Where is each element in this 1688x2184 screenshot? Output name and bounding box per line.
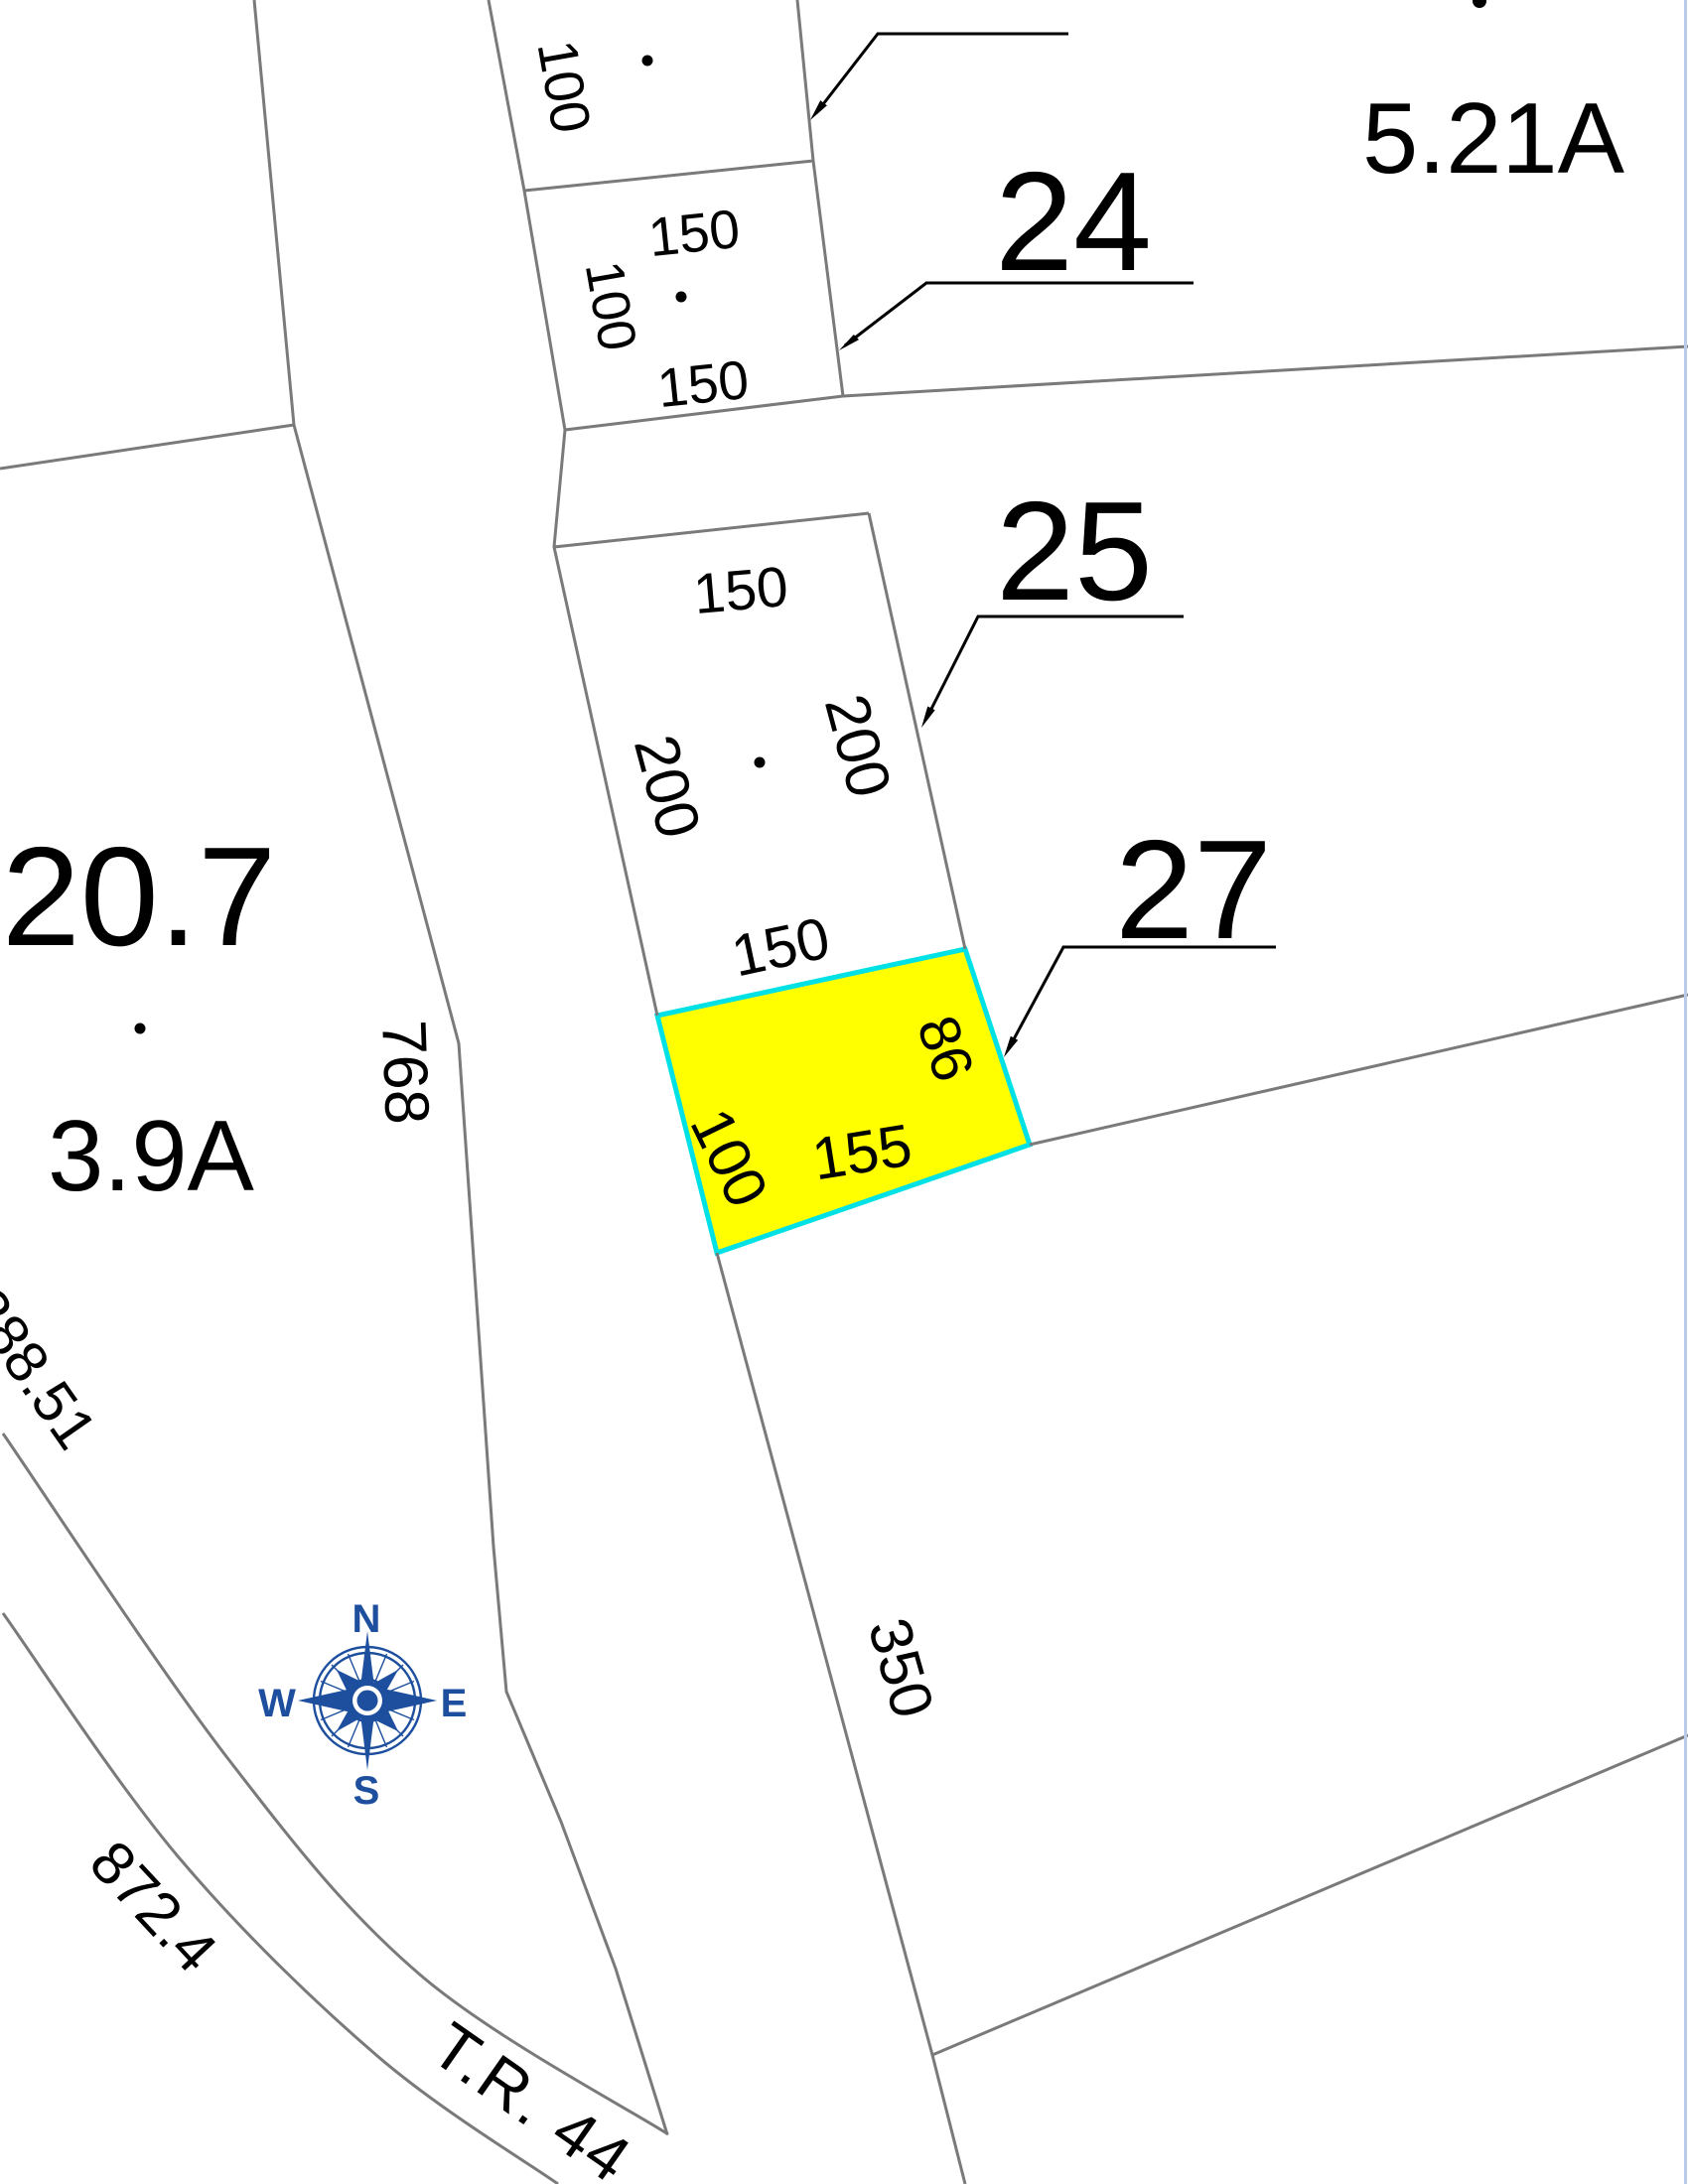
svg-text:100: 100 <box>574 257 648 355</box>
svg-text:872.4: 872.4 <box>77 1828 230 1984</box>
svg-text:N: N <box>352 1597 381 1641</box>
svg-text:3.9A: 3.9A <box>48 1101 254 1212</box>
svg-text:W: W <box>258 1682 296 1725</box>
svg-text:20.7: 20.7 <box>2 818 276 976</box>
svg-text:27: 27 <box>1115 811 1272 969</box>
svg-text:200: 200 <box>811 687 904 804</box>
svg-text:150: 150 <box>654 348 752 419</box>
svg-text:5.21A: 5.21A <box>1362 83 1625 195</box>
svg-text:100: 100 <box>525 36 603 138</box>
svg-text:E: E <box>441 1682 468 1725</box>
svg-text:288.51: 288.51 <box>0 1277 109 1461</box>
svg-text:200: 200 <box>621 728 713 845</box>
svg-text:150: 150 <box>691 555 790 626</box>
svg-text:150: 150 <box>645 198 743 268</box>
svg-text:25: 25 <box>996 473 1153 630</box>
svg-text:350: 350 <box>856 1611 947 1725</box>
svg-text:768: 768 <box>368 1019 442 1126</box>
svg-text:24: 24 <box>995 143 1152 301</box>
svg-text:S: S <box>353 1769 380 1813</box>
svg-text:150: 150 <box>726 904 835 989</box>
svg-text:T.R. 44: T.R. 44 <box>419 2008 645 2184</box>
